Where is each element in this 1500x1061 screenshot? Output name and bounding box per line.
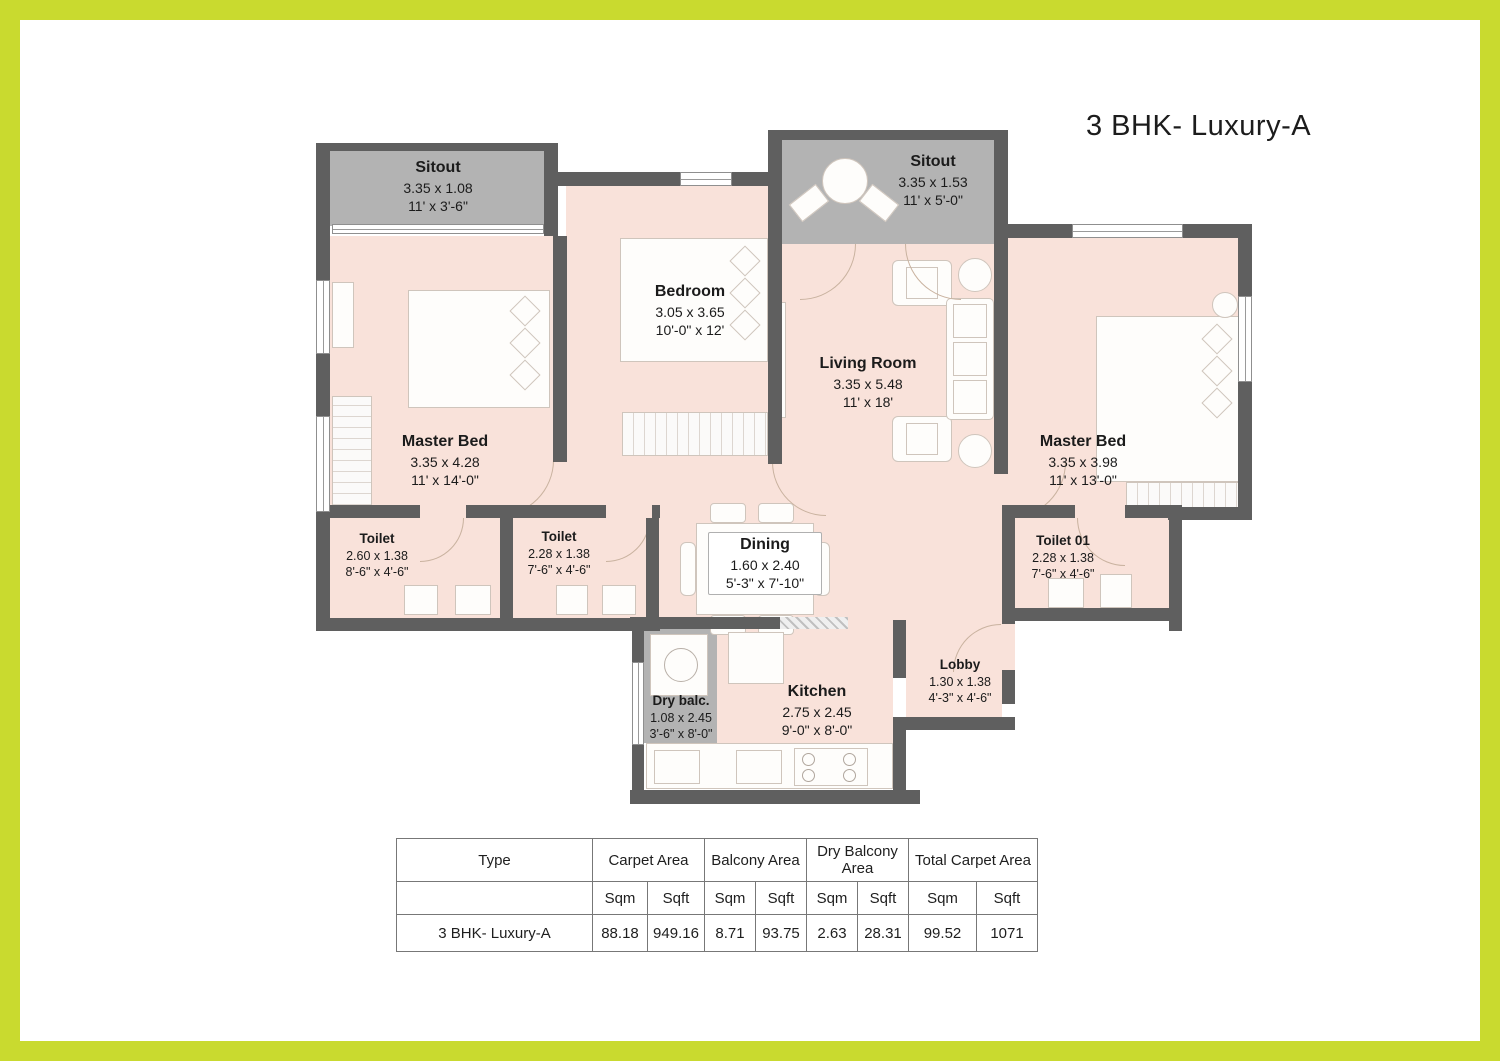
label-toilet-mid: Toilet 2.28 x 1.38 7'-6" x 4'-6": [492, 528, 626, 578]
wall-segment: [630, 617, 780, 629]
room-dim-ft: 11' x 18': [778, 393, 958, 411]
washbasin: [404, 585, 438, 615]
room-dim-ft: 7'-6" x 4'-6": [996, 566, 1130, 582]
wall-segment: [1002, 608, 1182, 621]
room-name: Sitout: [348, 158, 528, 179]
room-name: Bedroom: [600, 282, 780, 303]
room-dim-ft: 4'-3" x 4'-6": [912, 690, 1008, 706]
burner: [843, 769, 856, 782]
stove: [794, 748, 868, 786]
cell-type: 3 BHK- Luxury-A: [397, 915, 593, 952]
area-statement-table: Type Carpet Area Balcony Area Dry Balcon…: [396, 838, 1038, 952]
label-master-left: Master Bed 3.35 x 4.28 11' x 14'-0": [355, 432, 535, 489]
washbasin: [1048, 578, 1084, 608]
room-name: Dining: [713, 535, 817, 556]
cell-dry-balcony-sqft: 28.31: [858, 915, 909, 952]
label-lobby: Lobby 1.30 x 1.38 4'-3" x 4'-6": [912, 656, 1008, 706]
wall-segment: [553, 172, 769, 186]
sofa-cushion: [953, 342, 987, 376]
col-balcony-area: Balcony Area: [705, 839, 807, 882]
side-table: [958, 434, 992, 468]
wall-segment: [893, 717, 1015, 730]
cell-balcony-sqm: 8.71: [705, 915, 756, 952]
wall-hatch-strip: [780, 617, 848, 629]
wc: [602, 585, 636, 615]
door-opening: [420, 505, 466, 518]
sofa-cushion: [953, 304, 987, 338]
room-name: Master Bed: [993, 432, 1173, 453]
label-bedroom: Bedroom 3.05 x 3.65 10'-0" x 12': [600, 282, 780, 339]
window: [316, 280, 330, 354]
wall-segment: [893, 620, 906, 678]
subheader-sqm: Sqm: [909, 882, 977, 915]
subheader-sqft: Sqft: [858, 882, 909, 915]
room-name: Kitchen: [737, 682, 897, 703]
burner: [843, 753, 856, 766]
window: [680, 172, 732, 186]
wall-segment: [553, 236, 567, 462]
window: [332, 224, 544, 234]
room-dim-m: 2.28 x 1.38: [492, 546, 626, 562]
cell-carpet-sqft: 949.16: [648, 915, 705, 952]
room-dim-m: 3.35 x 1.53: [868, 173, 998, 191]
kitchen-sink: [654, 750, 700, 784]
wall-segment: [768, 240, 782, 464]
room-name: Lobby: [912, 656, 1008, 674]
wardrobe-bedroom: [622, 412, 768, 456]
room-dim-m: 2.75 x 2.45: [737, 703, 897, 721]
washbasin: [556, 585, 588, 615]
subheader-sqm: Sqm: [593, 882, 648, 915]
room-dim-ft: 11' x 13'-0": [993, 471, 1173, 489]
room-dim-ft: 11' x 14'-0": [355, 471, 535, 489]
burner: [802, 753, 815, 766]
window: [1238, 296, 1252, 382]
subheader-sqft: Sqft: [648, 882, 705, 915]
room-dim-m: 1.08 x 2.45: [634, 710, 728, 726]
door-opening: [1075, 505, 1125, 518]
room-dim-ft: 11' x 5'-0": [868, 191, 998, 209]
lamp-table: [1212, 292, 1238, 318]
wall-segment: [544, 143, 558, 236]
col-type: Type: [397, 839, 593, 882]
wall-segment: [1008, 224, 1072, 238]
label-dining: Dining 1.60 x 2.40 5'-3" x 7'-10": [708, 532, 822, 595]
room-dim-m: 3.05 x 3.65: [600, 303, 780, 321]
label-dry-balcony: Dry balc. 1.08 x 2.45 3'-6" x 8'-0": [634, 692, 728, 742]
door-opening: [606, 505, 652, 518]
room-dim-ft: 10'-0" x 12': [600, 321, 780, 339]
col-total-carpet-area: Total Carpet Area: [909, 839, 1038, 882]
side-table: [958, 258, 992, 292]
dining-chair: [758, 503, 794, 523]
room-name: Living Room: [778, 354, 958, 375]
subheader-sqm: Sqm: [705, 882, 756, 915]
table-subheader-row: Sqm Sqft Sqm Sqft Sqm Sqft Sqm Sqft: [397, 882, 1038, 915]
room-dim-ft: 7'-6" x 4'-6": [492, 562, 626, 578]
wall-segment: [646, 505, 659, 631]
room-name: Dry balc.: [634, 692, 728, 710]
floorplan-page: { "title": "3 BHK- Luxury-A", "rooms": {…: [0, 0, 1500, 1061]
room-dim-ft: 8'-6" x 4'-6": [310, 564, 444, 580]
cell-total-sqft: 1071: [977, 915, 1038, 952]
cell-dry-balcony-sqm: 2.63: [807, 915, 858, 952]
window: [316, 416, 330, 512]
room-dim-ft: 11' x 3'-6": [348, 197, 528, 215]
label-sitout-left: Sitout 3.35 x 1.08 11' x 3'-6": [348, 158, 528, 215]
subheader-sqm: Sqm: [807, 882, 858, 915]
col-carpet-area: Carpet Area: [593, 839, 705, 882]
label-toilet-left: Toilet 2.60 x 1.38 8'-6" x 4'-6": [310, 530, 444, 580]
wall-segment: [768, 130, 782, 244]
room-dim-m: 3.35 x 3.98: [993, 453, 1173, 471]
table-row: 3 BHK- Luxury-A 88.18 949.16 8.71 93.75 …: [397, 915, 1038, 952]
wall-segment: [316, 143, 558, 151]
room-name: Sitout: [868, 152, 998, 173]
wall-segment: [630, 790, 920, 804]
dining-chair: [680, 542, 696, 596]
room-dim-m: 3.35 x 4.28: [355, 453, 535, 471]
wall-segment: [632, 628, 644, 662]
plan-title: 3 BHK- Luxury-A: [1086, 110, 1311, 143]
label-sitout-top: Sitout 3.35 x 1.53 11' x 5'-0": [868, 152, 998, 209]
room-name: Master Bed: [355, 432, 535, 453]
subheader-sqft: Sqft: [756, 882, 807, 915]
dining-chair: [710, 503, 746, 523]
room-dim-ft: 3'-6" x 8'-0": [634, 726, 728, 742]
wall-segment: [768, 130, 1008, 140]
dresser-master-left: [332, 282, 354, 348]
room-dim-m: 3.35 x 1.08: [348, 179, 528, 197]
washing-machine-drum: [664, 648, 698, 682]
subheader-sqft: Sqft: [977, 882, 1038, 915]
room-dim-m: 2.60 x 1.38: [310, 548, 444, 564]
room-dim-m: 3.35 x 5.48: [778, 375, 958, 393]
cell-balcony-sqft: 93.75: [756, 915, 807, 952]
armchair-cushion: [906, 423, 938, 455]
empty-cell: [397, 882, 593, 915]
room-name: Toilet: [310, 530, 444, 548]
label-master-right: Master Bed 3.35 x 3.98 11' x 13'-0": [993, 432, 1173, 489]
label-kitchen: Kitchen 2.75 x 2.45 9'-0" x 8'-0": [737, 682, 897, 739]
table-header-row: Type Carpet Area Balcony Area Dry Balcon…: [397, 839, 1038, 882]
room-name: Toilet 01: [996, 532, 1130, 550]
kitchen-cabinet: [728, 632, 784, 684]
col-dry-balcony-area: Dry Balcony Area: [807, 839, 909, 882]
window: [1072, 224, 1183, 238]
kitchen-sink: [736, 750, 782, 784]
room-dim-m: 1.30 x 1.38: [912, 674, 1008, 690]
room-dim-ft: 9'-0" x 8'-0": [737, 721, 897, 739]
room-dim-m: 1.60 x 2.40: [713, 556, 817, 574]
cell-carpet-sqm: 88.18: [593, 915, 648, 952]
sofa-cushion: [953, 380, 987, 414]
room-name: Toilet: [492, 528, 626, 546]
burner: [802, 769, 815, 782]
room-dim-m: 2.28 x 1.38: [996, 550, 1130, 566]
room-dim-ft: 5'-3" x 7'-10": [713, 574, 817, 592]
label-toilet-01: Toilet 01 2.28 x 1.38 7'-6" x 4'-6": [996, 532, 1130, 582]
wall-segment: [316, 618, 660, 631]
wc: [455, 585, 491, 615]
label-living: Living Room 3.35 x 5.48 11' x 18': [778, 354, 958, 411]
cell-total-sqm: 99.52: [909, 915, 977, 952]
